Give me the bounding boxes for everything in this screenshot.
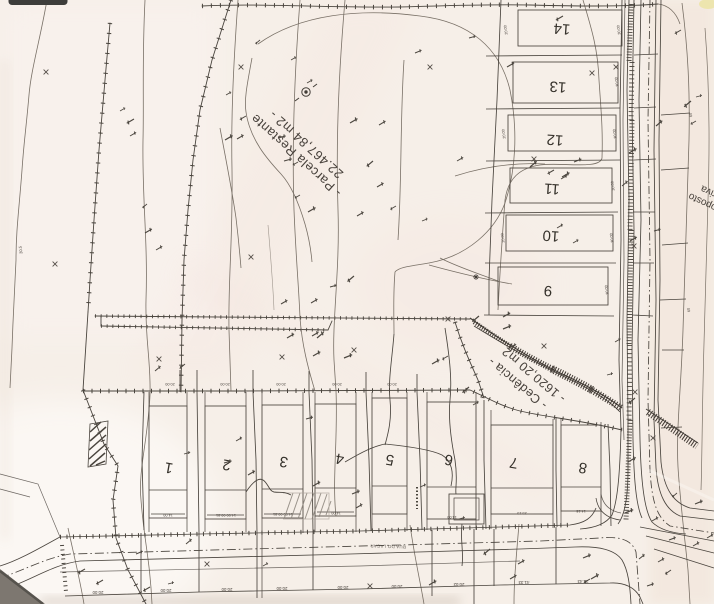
svg-text:14.00: 14.00 — [331, 511, 341, 515]
svg-text:20.00: 20.00 — [391, 584, 403, 589]
svg-text:20.00: 20.00 — [387, 382, 397, 386]
svg-text:20.00: 20.00 — [220, 382, 230, 386]
svg-text:20.00: 20.00 — [221, 587, 233, 592]
svg-text:20.00: 20.00 — [276, 586, 288, 591]
svg-text:11: 11 — [544, 179, 561, 197]
svg-text:14.00: 14.00 — [447, 515, 457, 519]
svg-text:20.00: 20.00 — [92, 590, 104, 595]
svg-text:14.15: 14.15 — [576, 509, 586, 513]
svg-text:14: 14 — [553, 19, 571, 37]
svg-text:20.02: 20.02 — [453, 582, 465, 587]
svg-text:20.00: 20.00 — [337, 585, 349, 590]
svg-text:14.00 00.81: 14.00 00.81 — [273, 512, 293, 516]
svg-text:60: 60 — [687, 307, 692, 312]
svg-text:14.00: 14.00 — [163, 513, 173, 517]
svg-text:20.00: 20.00 — [332, 382, 342, 386]
svg-text:60: 60 — [689, 112, 694, 117]
svg-text:41.33: 41.33 — [518, 580, 530, 585]
svg-text:12: 12 — [546, 130, 564, 148]
svg-text:13: 13 — [549, 77, 567, 95]
svg-text:25.15: 25.15 — [517, 511, 527, 515]
svg-text:22.43: 22.43 — [577, 579, 589, 584]
svg-text:20.00: 20.00 — [165, 382, 175, 386]
svg-text:10: 10 — [542, 226, 560, 244]
svg-text:20.00: 20.00 — [160, 588, 172, 593]
svg-text:20.00: 20.00 — [276, 382, 286, 386]
svg-text:14.00 00.81: 14.00 00.81 — [216, 513, 236, 517]
svg-text:9: 9 — [543, 282, 553, 300]
